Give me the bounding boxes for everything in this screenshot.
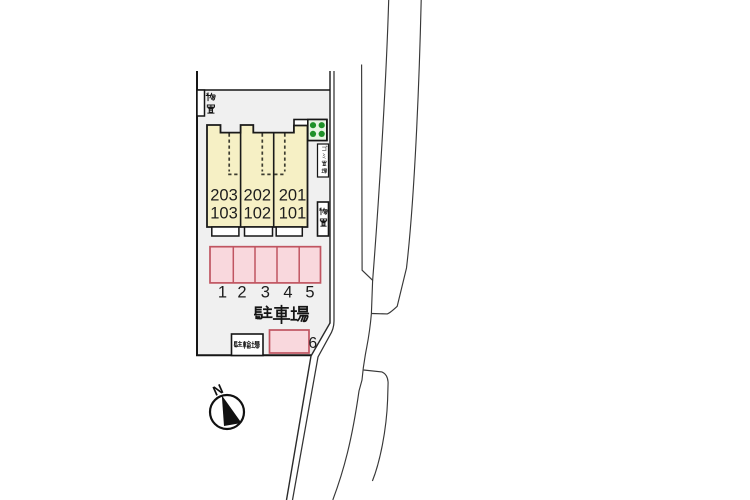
svg-text:1: 1 — [218, 284, 227, 302]
svg-text:6: 6 — [308, 335, 317, 352]
svg-text:3: 3 — [261, 284, 270, 302]
svg-text:4: 4 — [283, 284, 292, 302]
svg-text:5: 5 — [305, 284, 314, 302]
svg-text:2: 2 — [237, 284, 246, 302]
svg-text:203: 203 — [210, 187, 238, 205]
svg-text:102: 102 — [244, 205, 272, 223]
svg-text:101: 101 — [279, 205, 307, 223]
svg-text:103: 103 — [210, 205, 238, 223]
svg-text:201: 201 — [279, 187, 307, 205]
svg-text:202: 202 — [244, 187, 272, 205]
